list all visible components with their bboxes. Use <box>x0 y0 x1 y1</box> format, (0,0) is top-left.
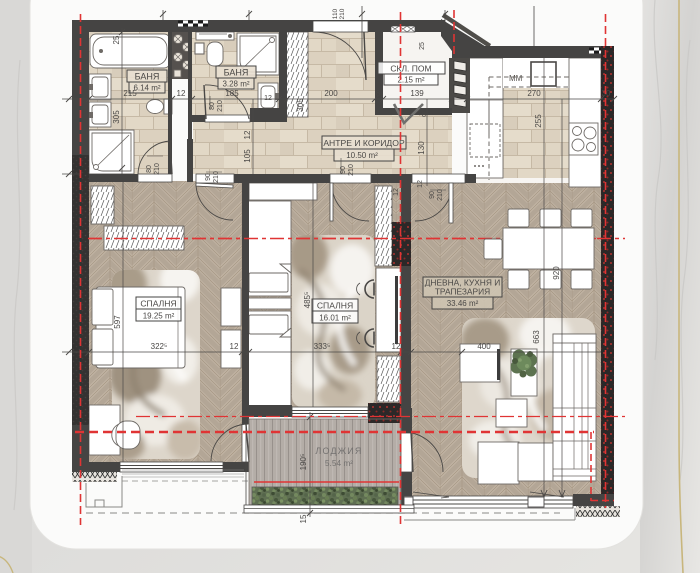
svg-text:12: 12 <box>230 342 239 351</box>
svg-text:6.14 m²: 6.14 m² <box>133 84 160 93</box>
svg-text:210: 210 <box>437 189 444 201</box>
svg-text:185: 185 <box>225 89 239 98</box>
svg-text:16.01 m²: 16.01 m² <box>319 314 351 323</box>
svg-text:270: 270 <box>527 89 541 98</box>
svg-text:215: 215 <box>123 89 137 98</box>
svg-text:33.46 m²: 33.46 m² <box>447 299 479 308</box>
svg-text:БАНЯ: БАНЯ <box>135 72 160 82</box>
svg-text:305: 305 <box>296 98 305 112</box>
svg-text:3.28 m²: 3.28 m² <box>222 80 249 89</box>
svg-text:485⁵: 485⁵ <box>303 292 312 309</box>
svg-text:322⁵: 322⁵ <box>151 342 168 351</box>
svg-text:5.54 m²: 5.54 m² <box>325 458 353 468</box>
svg-text:СПАЛНЯ: СПАЛНЯ <box>140 299 176 309</box>
svg-text:MM: MM <box>509 74 523 83</box>
svg-text:597: 597 <box>113 315 122 329</box>
svg-text:ТРАПЕЗАРИЯ: ТРАПЕЗАРИЯ <box>435 287 490 297</box>
svg-text:8: 8 <box>376 89 381 98</box>
svg-text:90: 90 <box>429 191 436 199</box>
svg-text:19.25 m²: 19.25 m² <box>143 312 175 321</box>
svg-text:12: 12 <box>264 95 272 102</box>
svg-text:663: 663 <box>532 330 541 344</box>
svg-text:90: 90 <box>205 173 212 181</box>
svg-text:190⁵: 190⁵ <box>299 454 308 471</box>
svg-text:210: 210 <box>339 8 346 19</box>
svg-text:12: 12 <box>177 89 186 98</box>
svg-text:210: 210 <box>213 171 220 183</box>
svg-text:25: 25 <box>112 35 121 44</box>
svg-text:АНТРЕ И КОРИДОР: АНТРЕ И КОРИДОР <box>323 138 405 148</box>
svg-text:СПАЛНЯ: СПАЛНЯ <box>317 301 353 311</box>
svg-text:210: 210 <box>154 163 161 175</box>
svg-text:105: 105 <box>243 149 252 163</box>
svg-text:200: 200 <box>324 89 338 98</box>
svg-text:110: 110 <box>332 8 339 19</box>
svg-text:10.50 m²: 10.50 m² <box>346 151 378 160</box>
svg-text:305: 305 <box>112 110 121 124</box>
svg-text:2.15 m²: 2.15 m² <box>397 76 424 85</box>
svg-text:210: 210 <box>348 164 355 176</box>
svg-text:БАНЯ: БАНЯ <box>224 68 249 78</box>
svg-text:400: 400 <box>477 342 491 351</box>
svg-text:920: 920 <box>552 266 561 280</box>
svg-text:139: 139 <box>410 89 424 98</box>
svg-text:12: 12 <box>393 188 400 196</box>
svg-text:ЛОДЖИЯ: ЛОДЖИЯ <box>315 446 362 456</box>
svg-text:25: 25 <box>419 42 426 50</box>
svg-text:12: 12 <box>417 180 424 188</box>
svg-text:130: 130 <box>417 141 426 155</box>
svg-text:210: 210 <box>217 100 224 112</box>
svg-text:12: 12 <box>392 342 401 351</box>
svg-text:СКЛ. ПОМ: СКЛ. ПОМ <box>390 64 431 74</box>
svg-text:80: 80 <box>146 165 153 173</box>
svg-text:12: 12 <box>243 130 252 139</box>
svg-text:333⁵: 333⁵ <box>314 342 331 351</box>
svg-text:8: 8 <box>422 112 426 119</box>
svg-text:15: 15 <box>299 514 308 523</box>
svg-text:255: 255 <box>534 114 543 128</box>
